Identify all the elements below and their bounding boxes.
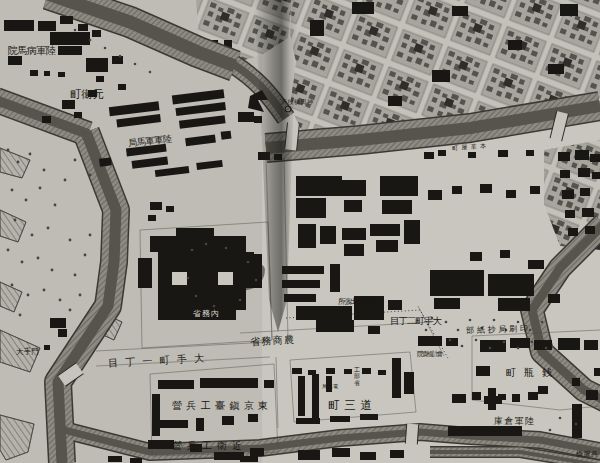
label-telegraph-office: 局信電	[322, 383, 338, 390]
gofukubashi-bridge	[405, 424, 418, 445]
courtyard-west	[172, 272, 187, 285]
label-motoemachi: 町衛元	[70, 88, 104, 100]
label-otemon: 大手門	[16, 347, 39, 356]
label-gofukubashi: 橋服呉	[576, 450, 598, 458]
label-tokyo-garrison-engineers: 營兵工臺鎭京東	[172, 400, 268, 411]
map-svg: 院馬病軍陸 町衛元 局馬軍軍陸 所役橋田神 町屋革本 所張出局遞驛 目丁二町手大…	[0, 0, 600, 463]
label-home-ministry: 省務內	[193, 309, 219, 318]
label-post-bureau-branch: 所張出局遞驛	[338, 297, 377, 306]
label-army-warehouse: 庫倉軍陸	[494, 416, 534, 426]
label-audit-board: 院査檢計會	[417, 350, 444, 358]
scanned-map-page: 院馬病軍陸 町衛元 局馬軍軍陸 所役橋田神 町屋革本 所張出局遞驛 目丁二町手大…	[0, 0, 600, 463]
label-kobusho: 工部省	[353, 366, 360, 387]
label-zenigamecho: 町瓶銭	[506, 367, 552, 378]
label-dosancho: 町三道	[328, 399, 372, 411]
label-army-horse-hospital: 院馬病軍陸	[8, 45, 56, 56]
label-otemachi-2chome: 目丁二町手大	[390, 316, 443, 326]
courtyard-east	[218, 272, 233, 285]
label-agriculture-commerce-ministry: 省務商農	[250, 334, 295, 347]
